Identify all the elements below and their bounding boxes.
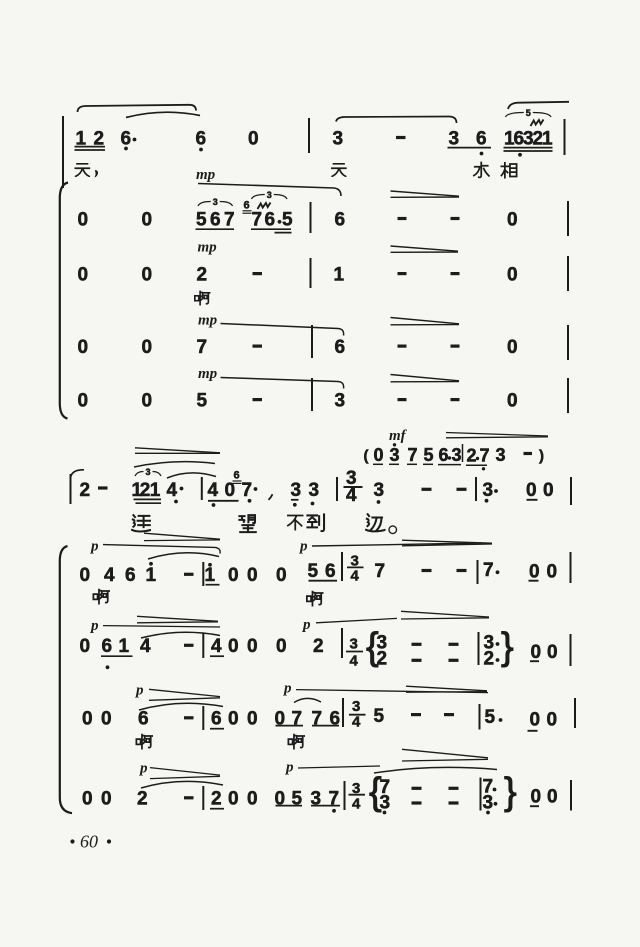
svg-text:567: 567 [196, 210, 235, 231]
svg-text:3: 3 [291, 480, 302, 501]
svg-text:5: 5 [374, 706, 385, 727]
svg-text:7: 7 [480, 446, 490, 466]
svg-text:): ) [539, 448, 544, 465]
svg-text:6: 6 [121, 129, 132, 150]
svg-text:1: 1 [334, 265, 345, 286]
svg-text:6: 6 [234, 470, 240, 482]
svg-text:2: 2 [313, 636, 324, 657]
svg-text:p: p [284, 760, 294, 776]
svg-text:0: 0 [228, 565, 239, 586]
svg-text:(: ( [364, 448, 369, 465]
svg-text:mp: mp [198, 240, 218, 256]
svg-text:0: 0 [78, 265, 89, 286]
svg-text:0: 0 [228, 789, 239, 810]
svg-text:16321: 16321 [504, 129, 553, 150]
svg-text:4: 4 [352, 796, 361, 813]
svg-text:6: 6 [211, 709, 222, 730]
svg-text:6: 6 [335, 210, 346, 231]
svg-text:3: 3 [213, 197, 218, 207]
svg-text:p: p [301, 617, 311, 633]
svg-text:0: 0 [247, 709, 258, 730]
svg-text:mp: mp [198, 366, 218, 382]
svg-text:0: 0 [80, 636, 91, 657]
svg-text:1: 1 [119, 636, 130, 657]
svg-text:1: 1 [146, 565, 157, 586]
svg-text:0: 0 [547, 710, 558, 731]
svg-text:3: 3 [333, 129, 344, 150]
svg-text:0: 0 [80, 565, 91, 586]
svg-text:2: 2 [377, 649, 388, 670]
svg-text:p: p [89, 618, 99, 634]
svg-text:5: 5 [526, 108, 531, 118]
svg-text:4: 4 [208, 480, 219, 501]
svg-text:3: 3 [267, 190, 272, 200]
svg-text:p: p [89, 539, 99, 555]
svg-text:4: 4 [352, 714, 361, 731]
svg-text:p: p [282, 681, 292, 697]
svg-text:4: 4 [104, 565, 115, 586]
svg-text:2: 2 [80, 480, 91, 501]
svg-text:3: 3 [483, 793, 494, 814]
svg-text:}: } [501, 626, 514, 668]
svg-text:3: 3 [483, 480, 494, 501]
svg-text:p: p [298, 539, 308, 555]
svg-text:4: 4 [167, 480, 178, 501]
svg-text:7: 7 [375, 561, 386, 582]
svg-text:2: 2 [197, 265, 208, 286]
svg-text:3: 3 [449, 129, 460, 150]
svg-text:0: 0 [78, 210, 89, 231]
svg-text:3: 3 [309, 480, 320, 501]
svg-text:6: 6 [265, 210, 276, 231]
svg-text:5: 5 [308, 561, 319, 582]
svg-text:4: 4 [346, 485, 357, 506]
svg-text:2: 2 [137, 789, 148, 810]
svg-text:7: 7 [483, 560, 494, 581]
svg-text:0: 0 [82, 709, 93, 730]
svg-text:0: 0 [78, 337, 89, 358]
svg-text:6: 6 [439, 445, 449, 465]
svg-text:0: 0 [507, 265, 518, 286]
svg-text:6: 6 [335, 337, 346, 358]
svg-text:5: 5 [282, 210, 293, 231]
svg-text:6: 6 [476, 129, 487, 150]
svg-text:3: 3 [380, 793, 391, 814]
svg-text:60: 60 [80, 832, 98, 852]
svg-text:0: 0 [543, 480, 554, 501]
svg-text:3: 3 [452, 445, 462, 465]
svg-text:2: 2 [484, 649, 495, 670]
svg-text:7: 7 [242, 480, 253, 501]
svg-text:0: 0 [276, 636, 287, 657]
svg-text:3: 3 [390, 445, 400, 465]
svg-text:0: 0 [142, 391, 153, 412]
svg-text:0: 0 [531, 787, 542, 808]
svg-text:0: 0 [531, 642, 542, 663]
svg-text:0: 0 [526, 480, 537, 501]
svg-text:121: 121 [132, 480, 161, 501]
svg-text:2: 2 [211, 789, 222, 810]
svg-text:5: 5 [424, 445, 434, 465]
svg-text:4: 4 [350, 653, 359, 670]
svg-text:5: 5 [197, 391, 208, 412]
svg-text:0: 0 [374, 445, 384, 465]
svg-text:0: 0 [547, 642, 558, 663]
svg-text:p: p [134, 683, 144, 699]
svg-text:1: 1 [205, 565, 216, 586]
svg-text:6: 6 [138, 709, 149, 730]
svg-text:0: 0 [101, 709, 112, 730]
svg-text:3: 3 [496, 445, 506, 465]
svg-text:mf: mf [389, 428, 408, 444]
svg-text:p: p [138, 761, 148, 777]
svg-text:2: 2 [467, 446, 477, 466]
svg-text:mp: mp [196, 167, 216, 183]
svg-text:7: 7 [252, 210, 263, 231]
svg-text:0: 0 [547, 787, 558, 808]
svg-text:7: 7 [408, 445, 418, 465]
svg-text:0: 0 [507, 337, 518, 358]
svg-text:3: 3 [145, 467, 150, 477]
svg-text:mp: mp [198, 313, 218, 329]
svg-text:3: 3 [335, 391, 346, 412]
svg-text:6: 6 [125, 565, 136, 586]
svg-text:0: 0 [142, 337, 153, 358]
svg-text:}: } [504, 771, 517, 813]
svg-text:3: 3 [374, 480, 385, 501]
svg-text:4: 4 [140, 636, 151, 657]
svg-text:0: 0 [78, 391, 89, 412]
svg-text:0: 0 [228, 709, 239, 730]
svg-text:3: 3 [352, 698, 360, 715]
svg-text:0: 0 [507, 391, 518, 412]
svg-text:0: 0 [142, 265, 153, 286]
svg-text:3: 3 [350, 636, 358, 653]
svg-text:0: 0 [529, 562, 540, 583]
svg-text:0: 0 [530, 710, 541, 731]
svg-text:6: 6 [325, 561, 336, 582]
svg-text:0: 0 [101, 789, 112, 810]
svg-text:4: 4 [351, 568, 360, 585]
svg-text:0: 0 [507, 210, 518, 231]
svg-text:0: 0 [247, 636, 258, 657]
svg-text:0: 0 [276, 565, 287, 586]
svg-text:7: 7 [197, 337, 208, 358]
svg-text:5: 5 [485, 707, 496, 728]
svg-text:4: 4 [211, 636, 222, 657]
svg-text:0: 0 [247, 789, 258, 810]
svg-text:6: 6 [196, 129, 207, 150]
svg-text:6: 6 [102, 636, 113, 657]
svg-text:0: 0 [82, 789, 93, 810]
svg-text:6: 6 [244, 200, 250, 212]
svg-text:0: 0 [547, 562, 558, 583]
svg-text:0: 0 [142, 210, 153, 231]
svg-text:0: 0 [228, 636, 239, 657]
svg-text:0: 0 [247, 565, 258, 586]
svg-text:0: 0 [248, 129, 259, 150]
